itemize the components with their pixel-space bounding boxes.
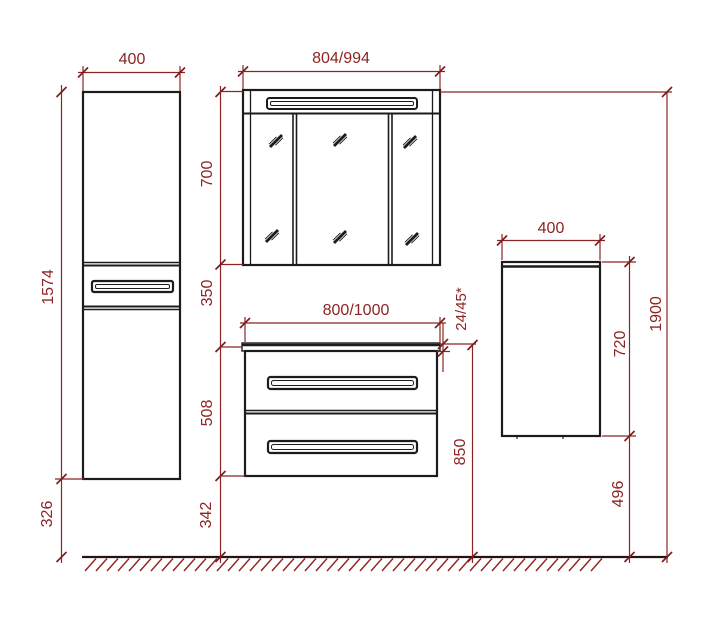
- dim-label-mirror-to-vanity-gap: 350: [199, 280, 216, 307]
- dim-line-tall-cabinet-width: [78, 66, 185, 91]
- technical-drawing-canvas: 400 804/994 800/1000 400 1574 326 700 35…: [0, 0, 711, 630]
- dim-line-vanity-width: [240, 317, 446, 342]
- dim-label-tall-cabinet-floor-gap: 326: [39, 501, 56, 528]
- dim-label-tall-cabinet-height: 1574: [40, 269, 57, 305]
- mirror-glint-icon: [265, 230, 279, 242]
- dim-label-side-cabinet-floor-gap: 496: [610, 481, 627, 508]
- dim-label-tall-cabinet-width: 400: [119, 51, 146, 68]
- dim-label-vanity-width: 800/1000: [323, 302, 390, 319]
- mirror-cabinet-light-strip: [267, 98, 417, 109]
- tall-cabinet: [83, 92, 180, 479]
- dim-label-side-cabinet-width: 400: [538, 220, 565, 237]
- mirror-glint-icon: [405, 233, 419, 245]
- dim-line-centre-stack: [220, 86, 245, 563]
- dim-label-overall-height: 1900: [648, 296, 665, 332]
- vanity-drawer-handle-top: [268, 377, 417, 389]
- dim-label-vanity-height: 508: [199, 400, 216, 427]
- furniture-elevation-drawing: 400 804/994 800/1000 400 1574 326 700 35…: [0, 0, 711, 630]
- dim-label-countertop-thickness: 24/45*: [453, 287, 470, 331]
- dim-label-vanity-top-height: 850: [452, 439, 469, 466]
- dim-line-overall-height: [440, 92, 672, 563]
- ground-hatch: [85, 559, 602, 572]
- dim-label-mirror-cabinet-width: 804/994: [312, 50, 370, 67]
- dim-line-side-cabinet-height: [602, 256, 636, 563]
- tall-cabinet-drawer-handle: [92, 281, 173, 292]
- dim-label-mirror-cabinet-height: 700: [199, 161, 216, 188]
- mirror-glint-icon: [403, 136, 417, 148]
- vanity-drawer-handle-bottom: [268, 441, 417, 453]
- dim-line-mirror-cabinet-width: [238, 65, 445, 89]
- mirror-cabinet: [243, 90, 440, 265]
- dim-label-vanity-floor-gap: 342: [198, 502, 215, 529]
- vanity-unit: [242, 343, 440, 476]
- mirror-glint-icon: [333, 134, 347, 146]
- mirror-glint-icon: [269, 135, 283, 147]
- side-cabinet: [502, 262, 600, 439]
- dim-line-side-cabinet-width: [497, 234, 605, 260]
- dim-label-side-cabinet-height: 720: [612, 331, 629, 358]
- dim-line-tall-cabinet-height: [55, 85, 84, 563]
- mirror-glint-icon: [333, 231, 347, 243]
- vanity-countertop: [242, 343, 440, 351]
